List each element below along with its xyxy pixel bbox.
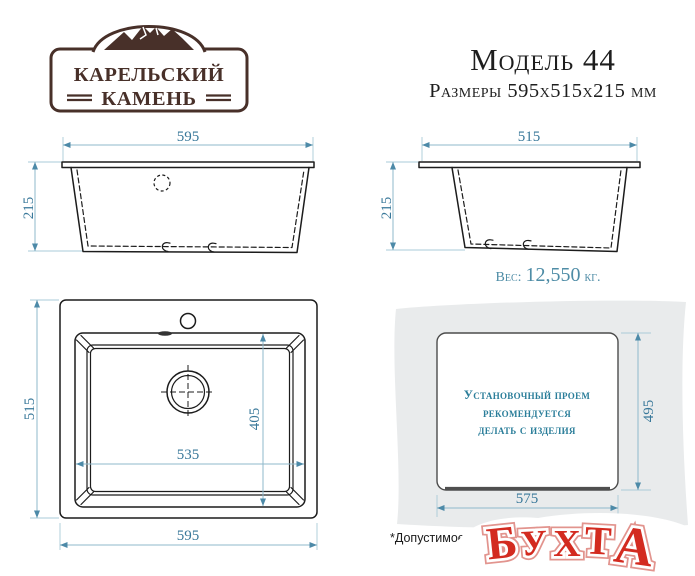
watermark: Б У Х Т А Б У Х Т А — [448, 508, 695, 576]
watermark-letter: Б — [484, 516, 520, 570]
inner-width-value: 535 — [177, 447, 200, 463]
weight-label: Вес: — [496, 270, 522, 285]
side-height-value: 215 — [379, 197, 395, 220]
overflow-hole-dashed — [154, 175, 170, 191]
dim-inner-depth: 405 — [247, 334, 263, 506]
front-height-value: 215 — [21, 197, 37, 220]
top-width-value: 595 — [177, 528, 200, 544]
watermark-letter: Т — [584, 517, 613, 563]
weight-value: 12,550 — [526, 264, 581, 286]
dim-side-width: 515 — [422, 129, 637, 161]
brand-logo: КАРЕЛЬСКИЙ КАМЕНЬ — [46, 12, 254, 116]
dim-side-height: 215 — [379, 162, 465, 250]
dim-top-width: 595 — [60, 523, 317, 550]
watermark-letter: У — [520, 522, 548, 563]
dim-top-side: 515 — [22, 300, 59, 518]
logo-line2: КАМЕНЬ — [101, 88, 196, 110]
weight-line: Вес: 12,550 кг. — [458, 264, 638, 287]
cutout-note-line3: делать с изделия — [478, 423, 576, 437]
top-side-value: 515 — [22, 398, 38, 421]
cutout-note-line1: Установочный проем — [464, 388, 591, 402]
logo-line1: КАРЕЛЬСКИЙ — [74, 63, 224, 86]
front-view-drawing: 595 215 — [18, 128, 350, 270]
sink-side-outline — [419, 162, 640, 252]
page-subtitle: Размеры 595х515х215 мм — [395, 80, 691, 103]
tap-hole — [181, 314, 196, 329]
watermark-letter: Х — [553, 523, 580, 565]
sink-front-outline — [62, 162, 314, 253]
cutout-width-value: 575 — [516, 491, 539, 507]
drain-centerlines — [161, 365, 215, 419]
overflow-slot — [158, 331, 172, 336]
front-width-value: 595 — [177, 129, 200, 145]
cutout-height-value: 495 — [641, 400, 657, 423]
drain-hole — [161, 365, 215, 419]
dim-front-width: 595 — [63, 129, 313, 161]
cutout-note-line2: рекомендуется — [483, 406, 571, 420]
top-view-drawing: 515 405 535 595 — [15, 288, 350, 570]
rim-corner-bevels — [77, 336, 304, 505]
dim-inner-width: 535 — [76, 447, 304, 464]
title-block: Модель 44 Размеры 595х515х215 мм — [395, 44, 691, 103]
sink-top-outline — [60, 300, 317, 518]
page-title: Модель 44 — [395, 44, 691, 77]
side-width-value: 515 — [518, 129, 541, 145]
inner-depth-value: 405 — [247, 408, 263, 431]
side-view-drawing: 515 215 — [378, 128, 651, 270]
watermark-letter: А — [611, 514, 658, 576]
weight-unit: кг. — [585, 270, 601, 285]
